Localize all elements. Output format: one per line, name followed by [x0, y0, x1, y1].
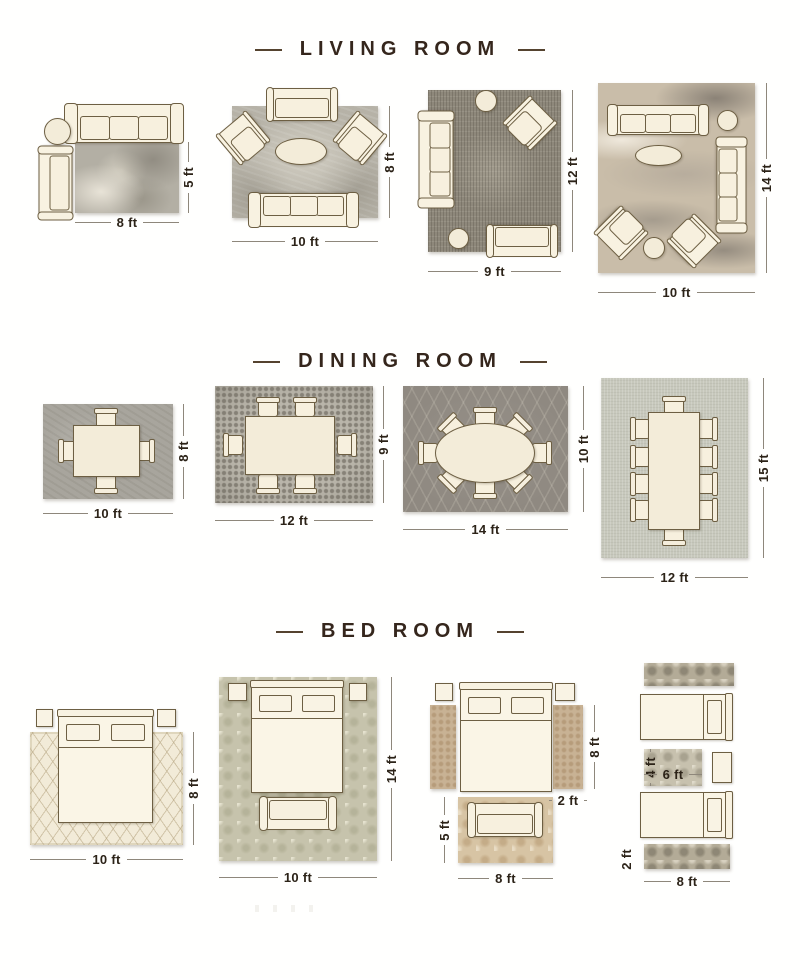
width-dimension: 9 ft	[428, 264, 561, 279]
nightstand	[157, 709, 176, 727]
dining-chair	[630, 472, 650, 496]
title-dash	[253, 361, 280, 363]
nightstand	[712, 752, 732, 783]
bedroom-layout-twin-beds: 4 ft 6 ft 2 ft 8 ft	[618, 655, 800, 895]
height-label: 5 ft	[181, 167, 196, 188]
dining-layout-14x10: 14 ft 10 ft	[400, 385, 600, 530]
width-dimension: 8 ft	[75, 215, 179, 230]
sofa-two-seat	[39, 147, 73, 220]
width-dimension: 10 ft	[598, 285, 755, 300]
dining-layout-12x9: 12 ft 9 ft	[205, 380, 400, 525]
height-label: 10 ft	[576, 435, 591, 463]
headboard	[250, 680, 344, 688]
pillow	[707, 700, 722, 734]
accent-rug-width-label: 6 ft	[663, 767, 684, 782]
living-layout-10x14: 10 ft 14 ft	[590, 70, 790, 305]
dining-chair	[698, 498, 718, 522]
width-label: 12 ft	[280, 513, 308, 528]
width-label: 14 ft	[471, 522, 499, 537]
headboard	[725, 693, 733, 741]
section-title-living: LIVING ROOM	[0, 38, 800, 61]
pillow	[468, 697, 500, 714]
dining-chair	[293, 397, 317, 417]
width-label: 10 ft	[94, 506, 122, 521]
height-dimension: 14 ft	[383, 677, 399, 861]
dining-layout-10x8: 10 ft 8 ft	[35, 395, 200, 520]
bed	[58, 710, 153, 823]
side-table-round	[717, 110, 738, 131]
faint-watermark	[255, 905, 325, 912]
nightstand	[349, 683, 367, 701]
height-dimension: 10 ft	[575, 386, 591, 512]
runner-width-label: 8 ft	[677, 874, 698, 889]
dining-chair	[223, 433, 243, 457]
title-dash	[520, 361, 547, 363]
living-layout-9x12: 9 ft 12 ft	[405, 78, 590, 293]
runner-width-dimension: 8 ft	[644, 874, 730, 889]
accent-rug-width-dimension: 6 ft	[644, 767, 702, 782]
height-dimension: 12 ft	[564, 90, 580, 252]
dining-chair	[532, 441, 552, 465]
runner-width-dimension: 2 ft	[549, 793, 587, 808]
side-table-round	[475, 90, 497, 112]
height-label: 14 ft	[384, 755, 399, 783]
height-label: 15 ft	[756, 454, 771, 482]
width-label: 10 ft	[291, 234, 319, 249]
bench	[260, 797, 336, 830]
loveseat	[267, 88, 337, 121]
pillow	[707, 798, 722, 832]
loveseat	[487, 225, 557, 257]
side-table-round	[448, 228, 469, 249]
dining-table-rect	[245, 416, 335, 475]
pillow	[302, 695, 334, 712]
side-table-round	[643, 237, 665, 259]
front-rug-width-dimension: 8 ft	[458, 871, 553, 886]
sofa-three-seat	[608, 105, 708, 135]
runner-height-dimension: 8 ft	[586, 705, 602, 789]
runner-rug-2x8	[430, 705, 456, 789]
twin-bed	[640, 792, 732, 838]
front-rug-height-label: 5 ft	[437, 820, 452, 841]
loveseat	[468, 803, 542, 837]
height-label: 14 ft	[759, 164, 774, 192]
width-dimension: 10 ft	[43, 506, 173, 521]
pillow	[259, 695, 291, 712]
bed	[460, 683, 552, 792]
dining-chair	[293, 474, 317, 494]
height-dimension: 15 ft	[755, 378, 771, 558]
dining-layout-12x15: 12 ft 15 ft	[600, 375, 790, 585]
nightstand	[435, 683, 453, 701]
dining-chair	[94, 474, 118, 494]
height-dimension: 8 ft	[381, 106, 397, 218]
dining-table-rect	[648, 412, 700, 530]
width-label: 9 ft	[484, 264, 505, 279]
area-rug-8x5	[75, 142, 179, 213]
runner-height-dimension: 2 ft	[618, 844, 634, 869]
width-dimension: 14 ft	[403, 522, 568, 537]
width-dimension: 12 ft	[601, 570, 748, 585]
title-dash	[255, 49, 282, 51]
sofa-three-seat	[717, 138, 747, 233]
headboard	[725, 791, 733, 839]
dining-table-rect	[73, 425, 140, 477]
nightstand	[555, 683, 575, 701]
sofa-three-seat	[419, 112, 454, 208]
dining-chair	[698, 445, 718, 469]
dining-chair	[256, 474, 280, 494]
section-title-dining: DINING ROOM	[0, 350, 800, 373]
nightstand	[228, 683, 247, 701]
width-label: 8 ft	[117, 215, 138, 230]
dining-chair	[698, 472, 718, 496]
height-label: 8 ft	[186, 778, 201, 799]
width-dimension: 12 ft	[215, 513, 373, 528]
height-dimension: 14 ft	[758, 83, 774, 273]
runner-height-label: 8 ft	[587, 737, 602, 758]
width-label: 10 ft	[284, 870, 312, 885]
dining-chair	[256, 397, 280, 417]
title-dash	[518, 49, 545, 51]
width-label: 10 ft	[92, 852, 120, 867]
runner-rug-8x2	[644, 844, 730, 869]
living-room-title: LIVING ROOM	[300, 38, 500, 61]
dining-chair	[630, 445, 650, 469]
living-layout-10x8: 10 ft 8 ft	[215, 85, 405, 250]
width-label: 12 ft	[660, 570, 688, 585]
width-dimension: 10 ft	[30, 852, 183, 867]
dining-chair	[630, 498, 650, 522]
height-label: 8 ft	[176, 441, 191, 462]
width-dimension: 10 ft	[232, 234, 378, 249]
dining-chair	[698, 417, 718, 441]
nightstand	[36, 709, 53, 727]
height-label: 12 ft	[565, 157, 580, 185]
section-title-bedroom: BED ROOM	[0, 620, 800, 643]
bedroom-layout-10x8: 10 ft 8 ft	[25, 700, 205, 865]
height-label: 8 ft	[382, 152, 397, 173]
pillow	[511, 697, 543, 714]
width-label: 10 ft	[662, 285, 690, 300]
runner-rug-2x8	[553, 705, 583, 789]
height-dimension: 8 ft	[175, 404, 191, 499]
dining-table-oval	[435, 423, 535, 483]
title-dash	[276, 631, 303, 633]
bed-room-title: BED ROOM	[321, 620, 479, 643]
dining-room-title: DINING ROOM	[298, 350, 502, 373]
pillow	[66, 724, 99, 741]
runner-height-label: 2 ft	[619, 849, 634, 870]
width-dimension: 10 ft	[219, 870, 377, 885]
twin-bed	[640, 694, 732, 740]
side-table-round	[44, 118, 71, 145]
pillow	[111, 724, 144, 741]
sofa-three-seat	[66, 104, 182, 143]
rug-size-guide: LIVING ROOM 8 ft 5 ft	[0, 0, 800, 978]
coffee-table-oval	[635, 145, 682, 166]
headboard	[459, 682, 553, 690]
headboard	[57, 709, 154, 717]
height-dimension: 5 ft	[180, 142, 196, 213]
front-rug-width-label: 8 ft	[495, 871, 516, 886]
height-label: 9 ft	[376, 434, 391, 455]
runner-rug-8x2	[644, 663, 734, 686]
dining-chair	[337, 433, 357, 457]
front-rug-height-dimension: 5 ft	[436, 797, 452, 863]
dining-chair	[630, 417, 650, 441]
height-dimension: 8 ft	[185, 732, 201, 845]
height-dimension: 9 ft	[375, 386, 391, 503]
runner-width-label: 2 ft	[558, 793, 579, 808]
bed	[251, 681, 343, 793]
living-layout-8x5: 8 ft 5 ft	[30, 85, 200, 235]
bedroom-layout-runners: 8 ft 2 ft 5 ft 8 ft	[425, 675, 615, 890]
coffee-table-oval	[275, 138, 327, 165]
sofa-three-seat	[250, 193, 357, 227]
bedroom-layout-10x14: 10 ft 14 ft	[205, 670, 405, 890]
title-dash	[497, 631, 524, 633]
